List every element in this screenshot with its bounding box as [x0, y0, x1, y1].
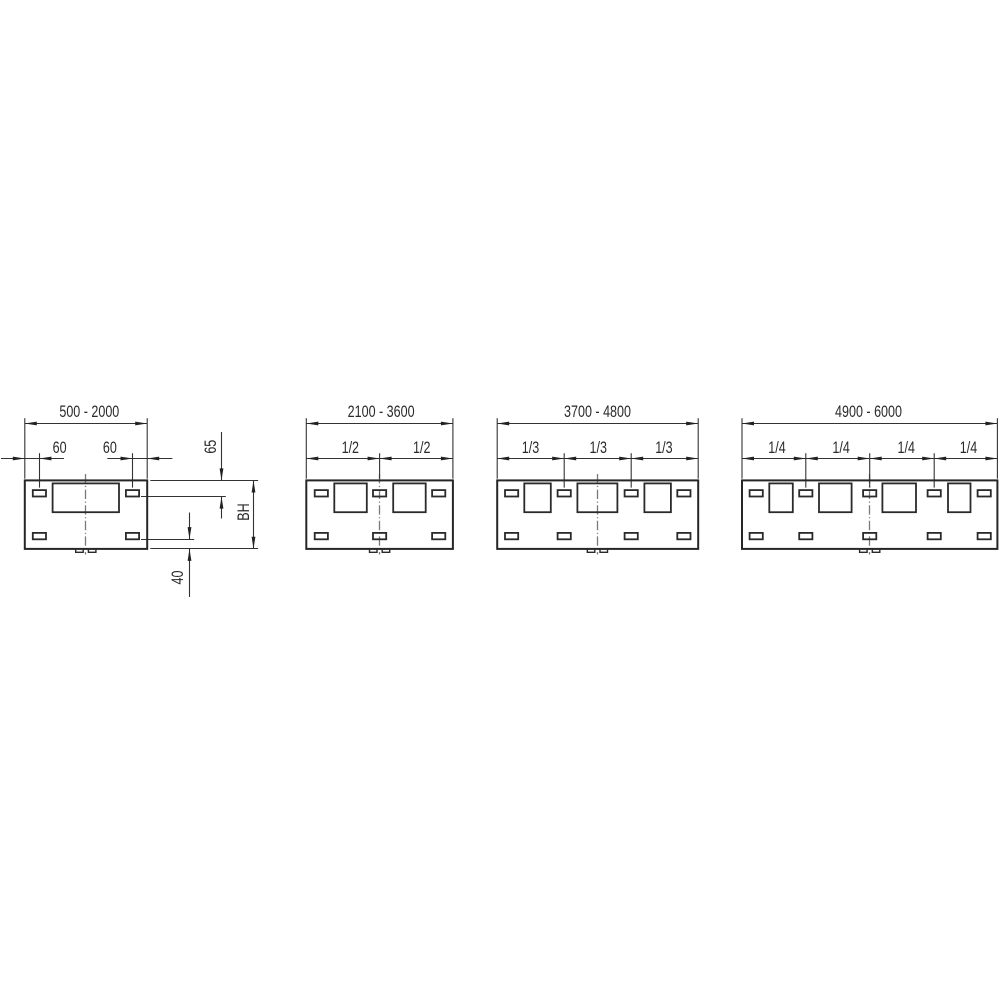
- svg-text:1/3: 1/3: [522, 439, 539, 457]
- svg-text:2100 - 3600: 2100 - 3600: [348, 403, 415, 421]
- svg-text:1/4: 1/4: [832, 439, 849, 457]
- svg-text:1/2: 1/2: [342, 439, 359, 457]
- svg-text:1/4: 1/4: [768, 439, 785, 457]
- svg-text:1/4: 1/4: [897, 439, 914, 457]
- svg-text:1/3: 1/3: [655, 439, 672, 457]
- svg-text:1/3: 1/3: [589, 439, 606, 457]
- svg-text:1/4: 1/4: [960, 439, 977, 457]
- svg-text:4900 - 6000: 4900 - 6000: [835, 403, 902, 421]
- svg-text:60: 60: [53, 439, 67, 457]
- svg-text:500 - 2000: 500 - 2000: [59, 403, 119, 421]
- svg-text:60: 60: [103, 439, 117, 457]
- svg-text:65: 65: [203, 440, 221, 454]
- svg-text:BH: BH: [236, 503, 254, 520]
- svg-text:3700 - 4800: 3700 - 4800: [564, 403, 631, 421]
- svg-text:1/2: 1/2: [413, 439, 430, 457]
- svg-text:40: 40: [170, 571, 188, 585]
